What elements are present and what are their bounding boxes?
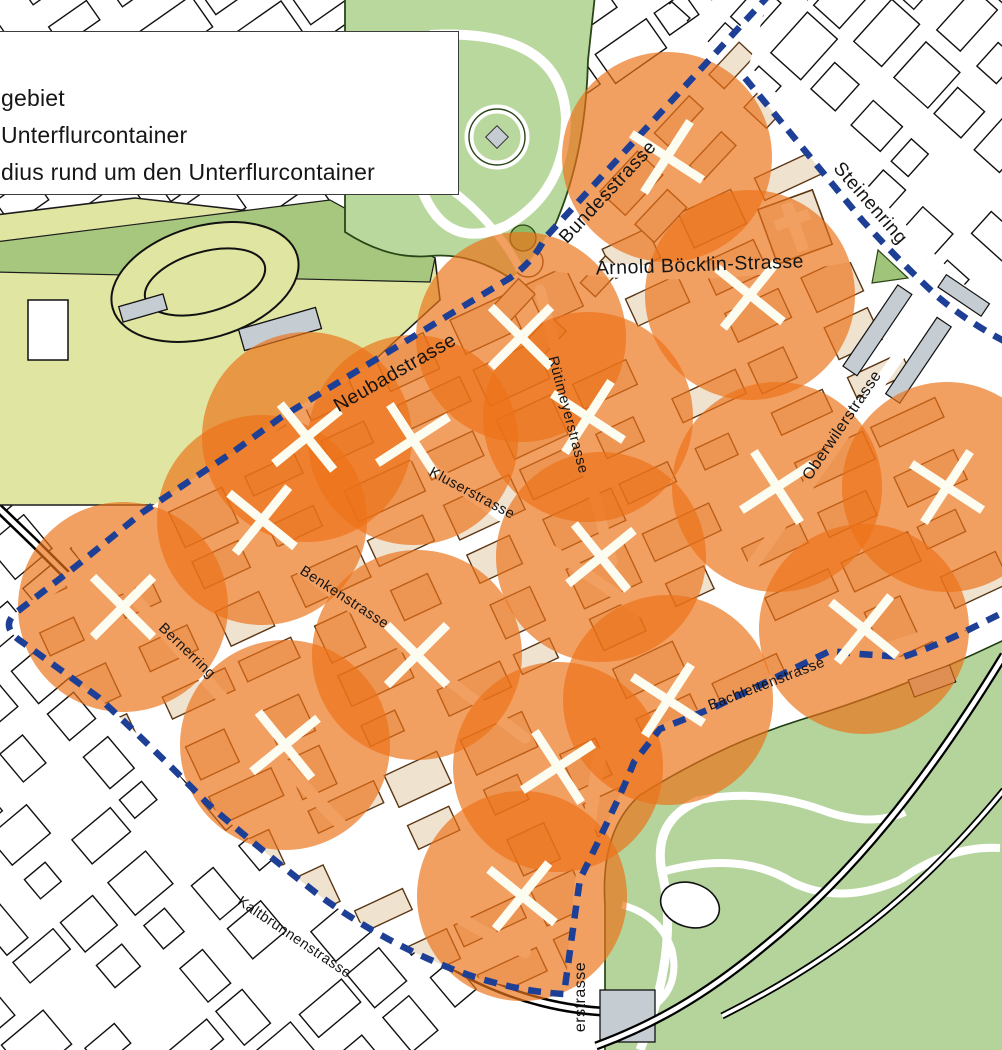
street-label: erstrasse [572,962,589,1032]
legend: gebiet Unterflurcontainer dius rund um d… [0,31,459,195]
legend-item-pilot-area: gebiet [1,85,65,112]
map-stage: BundesstrasseSteinenringArnold Böcklin-S… [0,0,1002,1050]
legend-item-container: Unterflurcontainer [1,122,187,149]
legend-item-radius: dius rund um den Unterflurcontainer [1,159,375,186]
